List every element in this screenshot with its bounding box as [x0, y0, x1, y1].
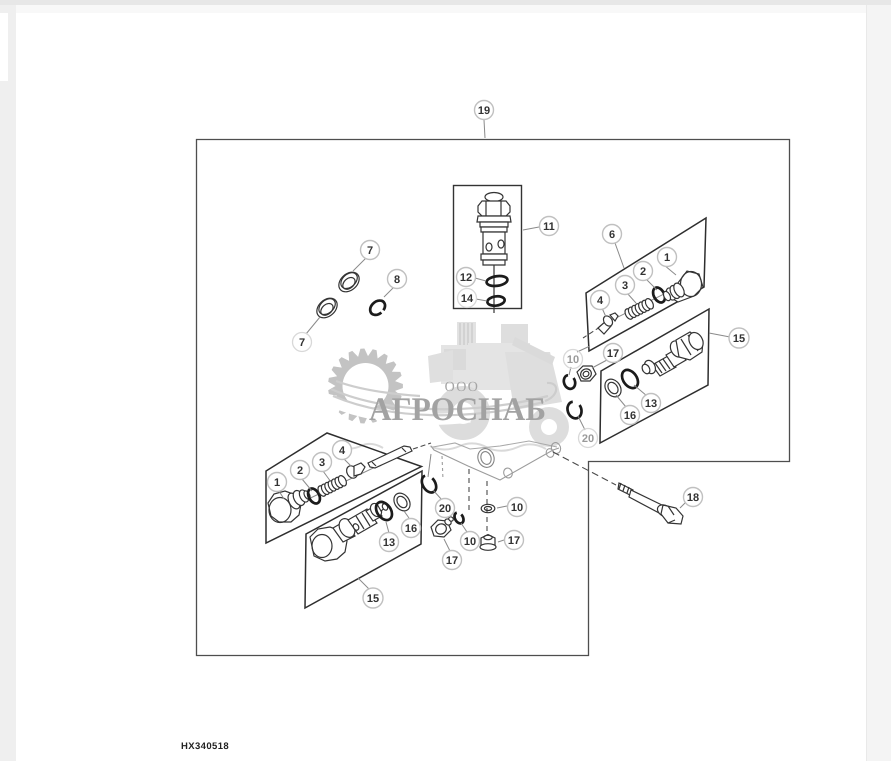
svg-text:4: 4 [339, 445, 346, 457]
svg-text:11: 11 [543, 221, 555, 233]
svg-text:10: 10 [464, 536, 476, 548]
svg-text:10: 10 [511, 502, 523, 514]
svg-text:1: 1 [274, 477, 280, 489]
svg-text:12: 12 [460, 272, 472, 284]
svg-text:18: 18 [687, 492, 699, 504]
svg-text:3: 3 [622, 280, 628, 292]
svg-text:17: 17 [508, 535, 520, 547]
svg-text:АГРОСНАБ: АГРОСНАБ [369, 392, 546, 428]
svg-text:1: 1 [664, 252, 670, 264]
svg-text:20: 20 [582, 433, 594, 445]
svg-text:17: 17 [607, 348, 619, 360]
svg-text:14: 14 [461, 293, 474, 305]
svg-text:15: 15 [367, 593, 379, 605]
svg-text:2: 2 [297, 465, 303, 477]
svg-text:2: 2 [640, 266, 646, 278]
svg-text:16: 16 [405, 523, 417, 535]
svg-text:HX340518: HX340518 [181, 741, 229, 752]
svg-text:7: 7 [367, 245, 373, 257]
svg-text:10: 10 [567, 354, 579, 366]
svg-text:17: 17 [446, 555, 458, 567]
svg-text:13: 13 [645, 398, 657, 410]
svg-text:13: 13 [383, 537, 395, 549]
svg-text:3: 3 [319, 457, 325, 469]
svg-text:19: 19 [478, 105, 490, 117]
svg-text:15: 15 [733, 333, 745, 345]
svg-text:8: 8 [394, 274, 400, 286]
svg-text:16: 16 [624, 410, 636, 422]
svg-text:7: 7 [299, 337, 305, 349]
svg-text:20: 20 [439, 503, 451, 515]
svg-text:4: 4 [597, 295, 604, 307]
svg-text:6: 6 [609, 229, 615, 241]
